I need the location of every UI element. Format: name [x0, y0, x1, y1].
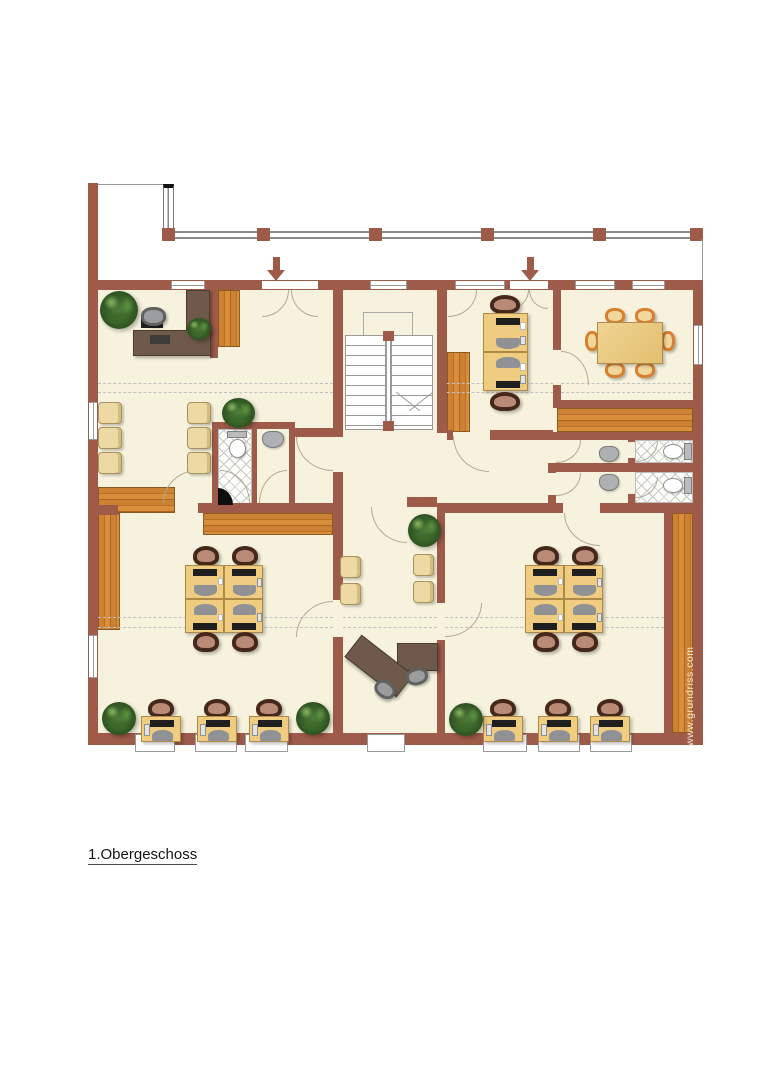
- toilet-icon: [663, 478, 683, 493]
- railing-post: [369, 228, 382, 241]
- paper: [520, 363, 526, 371]
- wall-conference-left-a: [553, 280, 561, 350]
- window-sill: [367, 734, 405, 752]
- wall-wc-left-b: [548, 463, 556, 473]
- desk-chair: [193, 546, 219, 566]
- stair-flight-left: [345, 335, 386, 430]
- plant: [102, 702, 136, 735]
- wall-right-office: [664, 513, 672, 733]
- phone: [520, 375, 526, 384]
- desk: [224, 599, 263, 633]
- desk-chair: [572, 632, 598, 652]
- sink-icon: [599, 474, 619, 491]
- plant: [187, 318, 211, 340]
- desk: [564, 565, 603, 599]
- conference-chair: [635, 362, 655, 378]
- waiting-chair: [187, 452, 211, 474]
- balcony-window: [163, 184, 174, 231]
- plant: [408, 514, 441, 547]
- wood-floor-left-strip: [98, 513, 120, 630]
- toilet-tank: [227, 431, 247, 438]
- desk: [564, 599, 603, 633]
- section-line: [98, 383, 333, 384]
- monitor: [496, 357, 520, 368]
- waiting-chair: [98, 452, 122, 474]
- desk-chair: [533, 632, 559, 652]
- window: [89, 635, 97, 678]
- railing-post: [593, 228, 606, 241]
- toilet-icon: [663, 444, 683, 459]
- wall-wc-inner-a: [628, 435, 635, 442]
- stair-post: [383, 331, 394, 341]
- wall-wc-left-a: [548, 432, 556, 440]
- section-line: [561, 392, 691, 393]
- office-chair: [141, 307, 166, 326]
- entry-arrow: [273, 257, 280, 271]
- window: [171, 281, 205, 289]
- floor-plan: www.grundriss.com 1.Obergeschoss: [0, 0, 764, 1080]
- wall-center-hall: [407, 497, 437, 507]
- keyboard: [496, 318, 520, 325]
- stair-flight-right: [391, 335, 433, 430]
- wood-floor-conference-corridor: [557, 408, 693, 432]
- wall-bathroom-top: [212, 422, 295, 429]
- desk-chair: [232, 632, 258, 652]
- wall-wc-inner-b: [628, 458, 635, 472]
- desk: [224, 565, 263, 599]
- conference-chair: [661, 331, 675, 351]
- railing-post: [162, 228, 175, 241]
- paper: [520, 322, 526, 330]
- wood-floor-top-strip: [203, 513, 333, 535]
- wall-bathroom-mid: [252, 429, 257, 505]
- desk: [590, 716, 630, 742]
- conference-chair: [605, 362, 625, 378]
- section-line: [343, 617, 437, 618]
- railing-end-line: [702, 239, 703, 280]
- railing-post: [481, 228, 494, 241]
- plant: [100, 291, 138, 329]
- window: [89, 402, 97, 440]
- phone: [520, 336, 526, 345]
- wall-mid-left-a: [88, 505, 118, 515]
- section-line: [343, 627, 437, 628]
- wall-center-left: [333, 472, 343, 600]
- section-line: [98, 392, 333, 393]
- wall-south-mid-a: [437, 503, 563, 513]
- desk-chair: [193, 632, 219, 652]
- desk: [141, 716, 181, 742]
- wall-roomB-bottom-b: [490, 430, 553, 440]
- plant: [296, 702, 330, 735]
- keyboard: [496, 381, 520, 388]
- wall-bathroom-right: [289, 429, 295, 505]
- toilet-tank: [684, 477, 692, 494]
- desk-cluster: [185, 565, 263, 633]
- wood-floor-entry: [218, 290, 240, 347]
- sink-icon: [262, 431, 284, 448]
- plant: [449, 703, 483, 736]
- desk-cluster: [525, 565, 603, 633]
- desk-chair: [533, 546, 559, 566]
- desk: [483, 352, 528, 391]
- plant: [222, 398, 255, 428]
- railing-post: [257, 228, 270, 241]
- wall-stair-left: [333, 290, 343, 433]
- entry-opening: [510, 281, 548, 289]
- wall-center-right-low: [437, 640, 445, 733]
- stair-stringer: [386, 335, 391, 430]
- entry-opening: [262, 281, 318, 289]
- sink-icon: [599, 446, 619, 462]
- waiting-chair: [340, 583, 361, 605]
- waiting-chair: [340, 556, 361, 578]
- entry-arrow: [527, 257, 534, 271]
- wall-center-left-low: [333, 637, 343, 733]
- waiting-chair: [98, 427, 122, 449]
- waiting-chair: [187, 427, 211, 449]
- waiting-chair: [413, 581, 434, 603]
- wall-stair-right: [437, 290, 447, 433]
- balcony-railing: [165, 231, 703, 239]
- desk: [249, 716, 289, 742]
- desk: [483, 716, 523, 742]
- conference-table: [597, 322, 663, 364]
- desk: [525, 599, 564, 633]
- stair-post: [383, 421, 394, 431]
- wall-south-mid-b: [600, 503, 703, 513]
- window: [694, 325, 702, 365]
- monitor: [496, 338, 520, 349]
- toilet-icon: [229, 439, 246, 458]
- watermark: www.grundriss.com: [684, 660, 696, 746]
- desk-chair: [232, 546, 258, 566]
- floor-title: 1.Obergeschoss: [88, 846, 197, 865]
- waiting-chair: [98, 402, 122, 424]
- desk-chair: [572, 546, 598, 566]
- wall-center-right: [437, 503, 445, 603]
- desk: [185, 565, 224, 599]
- waiting-chair: [413, 554, 434, 576]
- balcony-edge-line: [98, 184, 164, 185]
- desk-chair: [490, 392, 520, 411]
- desk-accessory: [150, 335, 170, 344]
- window: [632, 281, 665, 289]
- toilet-tank: [684, 443, 692, 460]
- desk: [197, 716, 237, 742]
- waiting-chair: [187, 402, 211, 424]
- wall-conference-bottom: [557, 400, 703, 408]
- desk: [185, 599, 224, 633]
- desk: [525, 565, 564, 599]
- wall-office-right: [210, 290, 218, 358]
- desk: [483, 313, 528, 352]
- desk-chair: [490, 295, 520, 314]
- window-stairwell: [370, 281, 407, 289]
- window: [455, 281, 505, 289]
- window: [575, 281, 615, 289]
- desk: [538, 716, 578, 742]
